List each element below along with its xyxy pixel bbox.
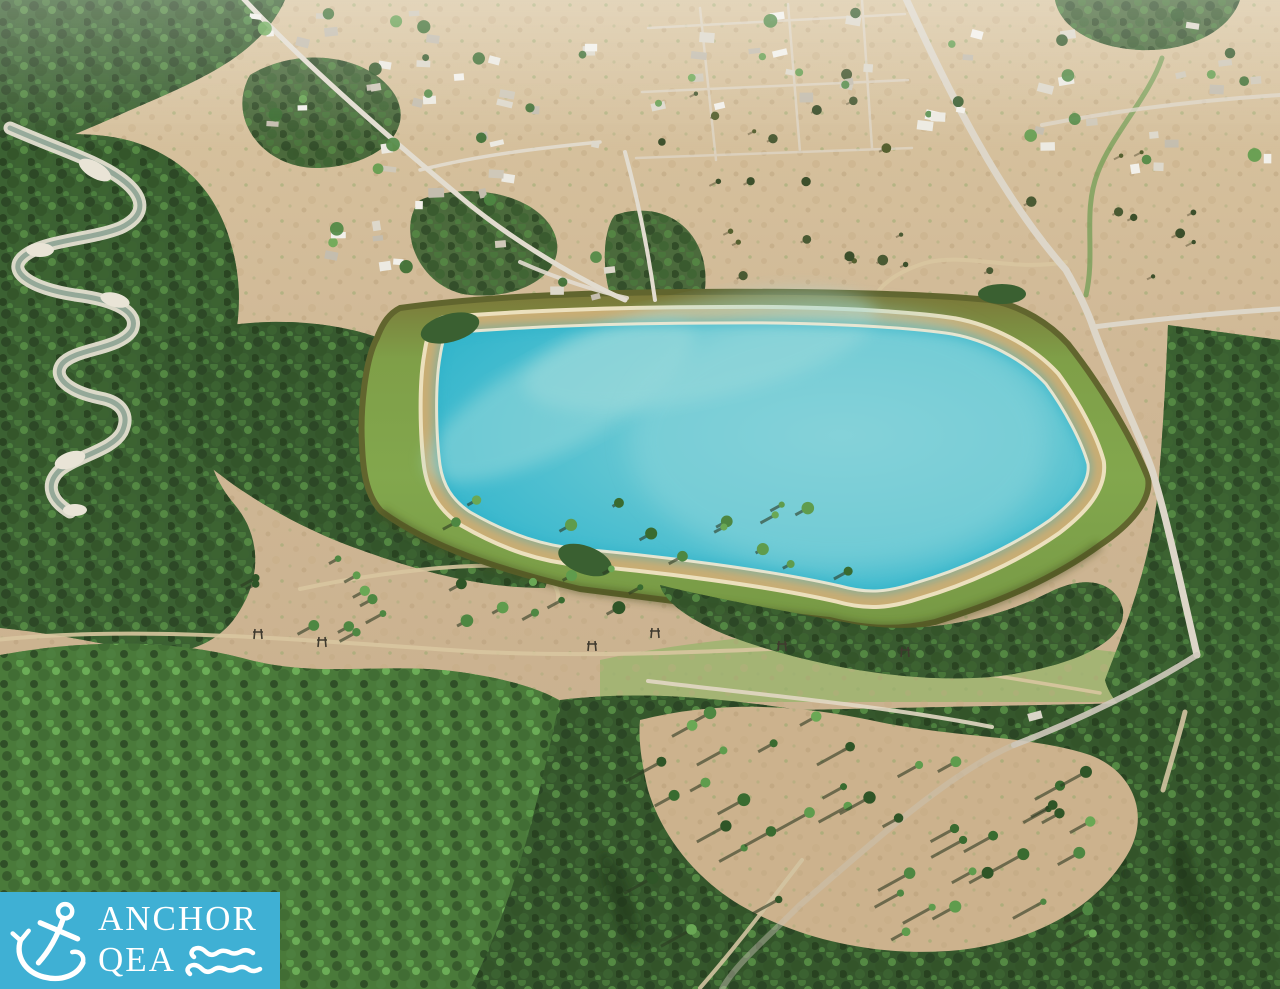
horizon-haze: [0, 0, 1280, 150]
anchor-icon: [10, 898, 90, 984]
waves-icon: [184, 945, 264, 981]
logo-box: ANCHOR QEA: [0, 892, 280, 989]
logo-text-line2: QEA: [98, 942, 176, 977]
logo-text-line1: ANCHOR: [98, 901, 264, 936]
aerial-photo: [0, 0, 1280, 989]
